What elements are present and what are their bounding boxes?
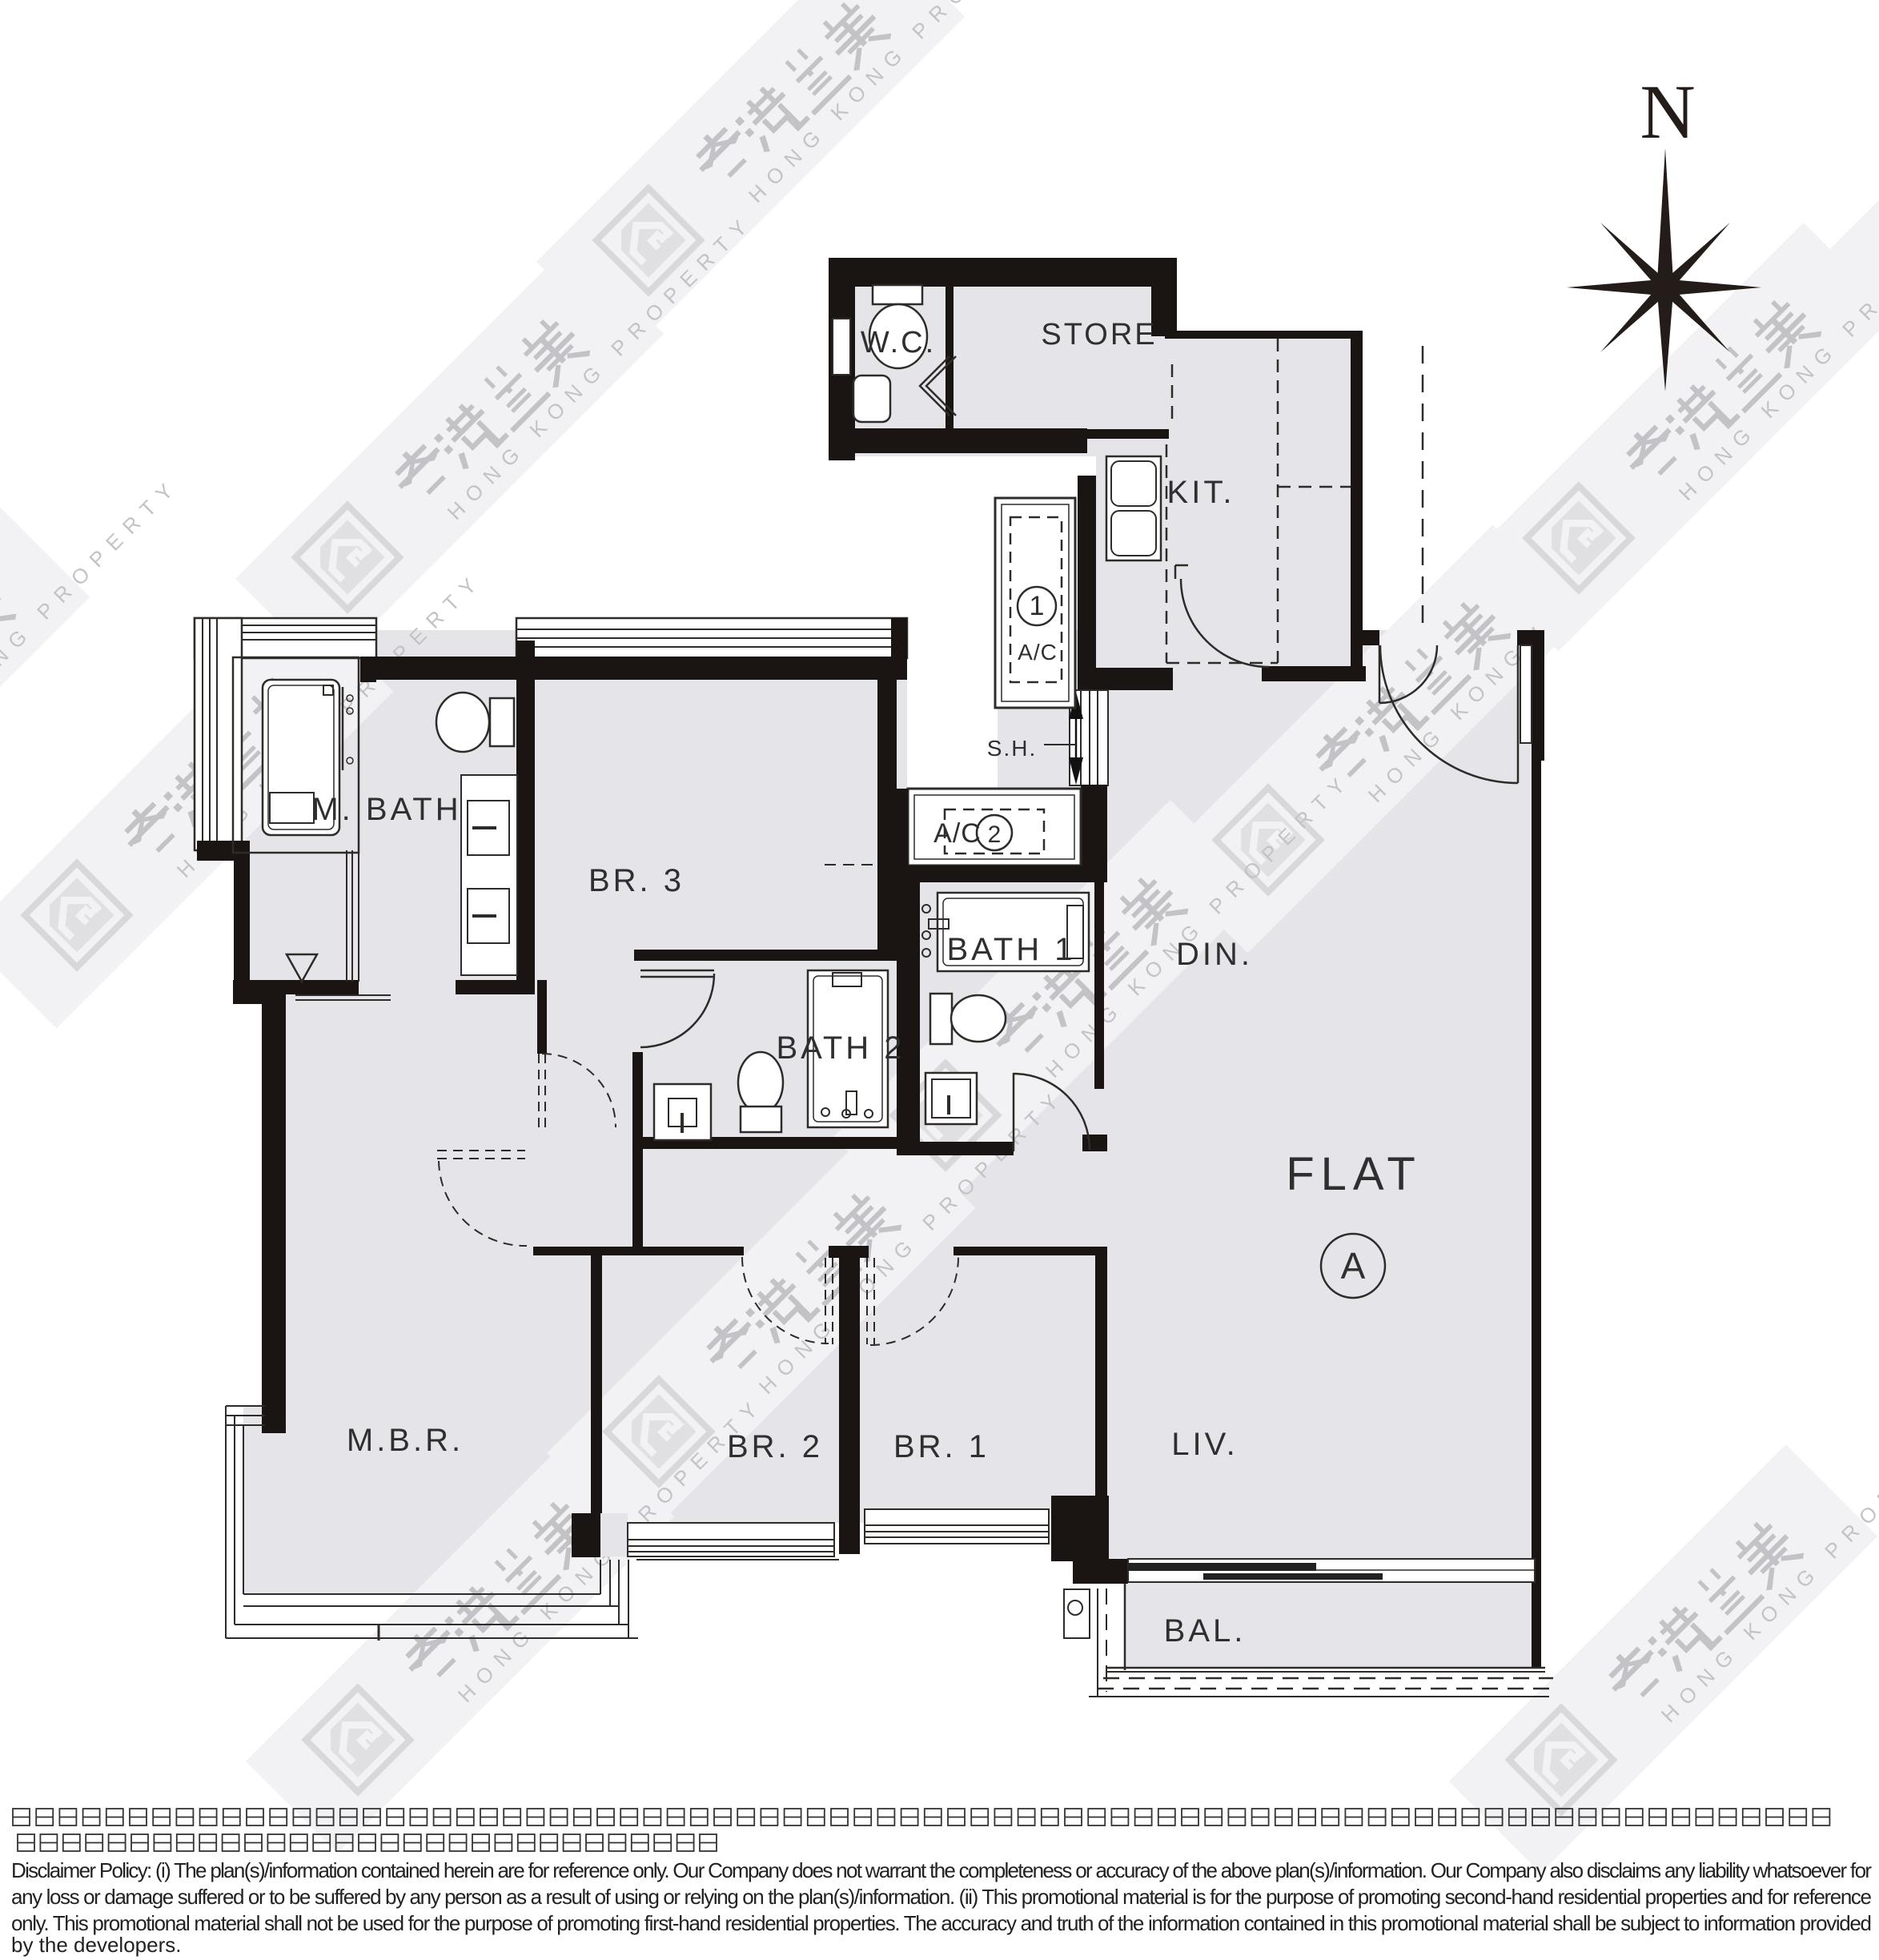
svg-text:Disclaimer Policy: (i) The pla: Disclaimer Policy: (i) The plan(s)/infor… bbox=[11, 1858, 1872, 1882]
svg-text:BR. 3: BR. 3 bbox=[588, 863, 685, 898]
svg-text:BR. 2: BR. 2 bbox=[727, 1429, 823, 1464]
svg-text:by the developers.: by the developers. bbox=[11, 1933, 181, 1957]
svg-text:LIV.: LIV. bbox=[1171, 1427, 1238, 1462]
svg-text:any loss or damage suffered or: any loss or damage suffered or to be suf… bbox=[11, 1885, 1872, 1909]
svg-text:A/C: A/C bbox=[933, 818, 982, 849]
svg-text:BATH 2: BATH 2 bbox=[776, 1030, 905, 1066]
svg-text:only. This promotional materia: only. This promotional material shall no… bbox=[11, 1911, 1872, 1935]
svg-text:S.H.: S.H. bbox=[987, 736, 1037, 761]
svg-text:KIT.: KIT. bbox=[1167, 475, 1235, 510]
svg-text:A/C: A/C bbox=[1018, 640, 1058, 665]
svg-text:A: A bbox=[1341, 1245, 1366, 1287]
svg-text:W.C.: W.C. bbox=[861, 326, 936, 359]
svg-text:2: 2 bbox=[988, 821, 1002, 848]
svg-text:STORE: STORE bbox=[1041, 318, 1157, 351]
svg-text:BATH 1: BATH 1 bbox=[946, 932, 1075, 967]
svg-text:1: 1 bbox=[1030, 591, 1045, 621]
svg-text:BAL.: BAL. bbox=[1164, 1613, 1247, 1649]
svg-text:DIN.: DIN. bbox=[1176, 937, 1253, 972]
svg-text:BR. 1: BR. 1 bbox=[893, 1429, 990, 1464]
svg-text:M.B.R.: M.B.R. bbox=[347, 1423, 464, 1458]
svg-text:FLAT: FLAT bbox=[1286, 1148, 1422, 1200]
svg-text:N: N bbox=[1640, 69, 1695, 155]
svg-text:M. BATH: M. BATH bbox=[311, 792, 461, 827]
